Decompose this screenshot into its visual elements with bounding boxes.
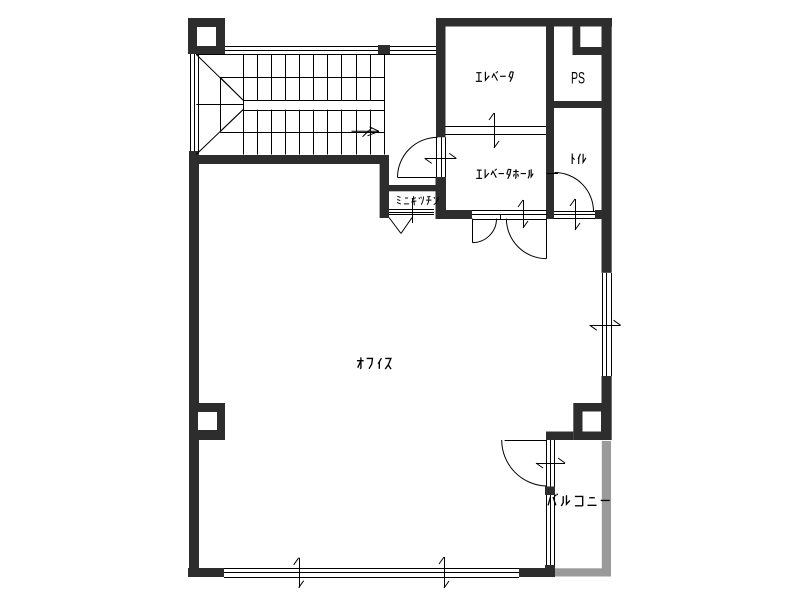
svg-text:PS: PS — [571, 69, 585, 88]
